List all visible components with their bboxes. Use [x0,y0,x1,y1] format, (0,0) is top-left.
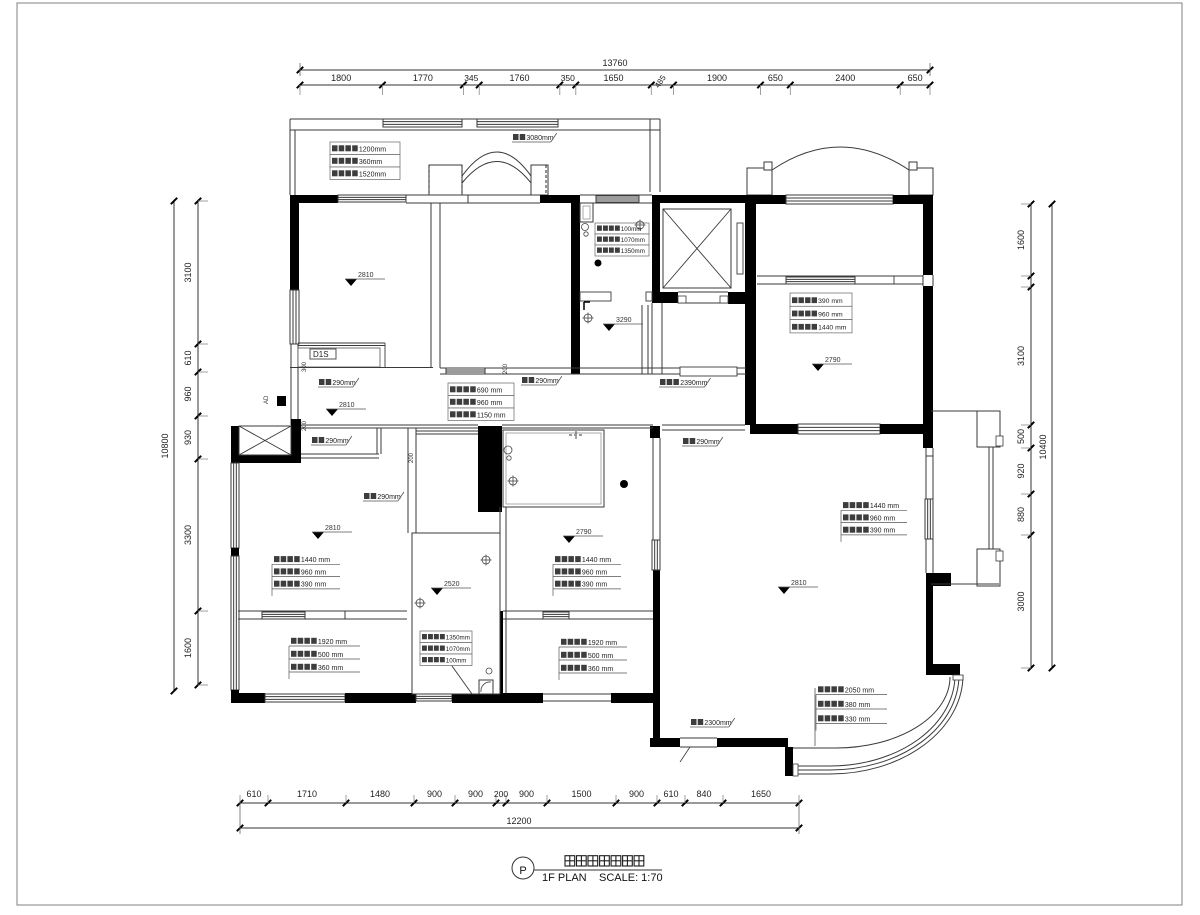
svg-text:900: 900 [468,789,483,799]
svg-text:12200: 12200 [506,816,531,826]
svg-text:900: 900 [427,789,442,799]
svg-text:930: 930 [183,430,193,445]
svg-text:960 mm: 960 mm [582,569,607,576]
svg-text:3300: 3300 [183,525,193,545]
svg-text:2390mm: 2390mm [680,380,707,387]
svg-text:500 mm: 500 mm [318,652,343,659]
svg-text:650: 650 [768,73,783,83]
svg-text:2400: 2400 [835,73,855,83]
svg-text:650: 650 [908,73,923,83]
svg-text:2810: 2810 [325,525,341,532]
svg-text:350: 350 [561,73,575,83]
svg-text:960 mm: 960 mm [301,569,326,576]
svg-text:300: 300 [302,361,308,372]
svg-text:1440 mm: 1440 mm [818,325,847,332]
svg-text:1600: 1600 [183,638,193,658]
svg-text:3000: 3000 [1016,591,1026,611]
svg-text:840: 840 [696,789,711,799]
svg-text:1440 mm: 1440 mm [582,557,611,564]
svg-text:1760: 1760 [509,73,529,83]
svg-text:610: 610 [183,350,193,365]
svg-text:290mm: 290mm [377,494,401,501]
svg-text:2790: 2790 [576,529,592,536]
svg-text:2050 mm: 2050 mm [845,687,874,694]
svg-text:2810: 2810 [358,272,374,279]
svg-text:690 mm: 690 mm [477,387,502,394]
svg-text:1920 mm: 1920 mm [588,640,617,647]
svg-text:880: 880 [1016,507,1026,522]
svg-text:1800: 1800 [331,73,351,83]
svg-text:200: 200 [302,420,308,431]
svg-text:200: 200 [503,363,509,374]
svg-text:610: 610 [246,789,261,799]
svg-text:390 mm: 390 mm [870,528,895,535]
svg-text:10400: 10400 [1038,434,1048,459]
svg-text:900: 900 [519,789,534,799]
svg-text:290mm: 290mm [696,439,720,446]
svg-text:360 mm: 360 mm [318,665,343,672]
svg-text:500 mm: 500 mm [588,653,613,660]
svg-text:1480: 1480 [370,789,390,799]
svg-text:2790: 2790 [825,357,841,364]
svg-text:1440 mm: 1440 mm [870,503,899,510]
svg-text:390 mm: 390 mm [818,298,843,305]
svg-text:610: 610 [663,789,678,799]
svg-text:1900: 1900 [707,73,727,83]
svg-text:1920 mm: 1920 mm [318,639,347,646]
svg-text:3100: 3100 [183,262,193,282]
svg-text:900: 900 [629,789,644,799]
svg-text:2810: 2810 [791,580,807,587]
svg-text:1500: 1500 [571,789,591,799]
svg-text:290mm: 290mm [535,378,559,385]
svg-text:P: P [519,865,526,877]
svg-text:1200mm: 1200mm [359,146,386,153]
svg-text:1F PLAN: 1F PLAN [542,872,587,884]
svg-text:1520mm: 1520mm [359,171,386,178]
svg-text:100mm: 100mm [621,226,642,233]
svg-text:360 mm: 360 mm [588,666,613,673]
svg-text:1770: 1770 [413,73,433,83]
svg-text:3080mm: 3080mm [526,135,553,142]
svg-text:1070mm: 1070mm [446,646,470,653]
svg-text:290mm: 290mm [332,380,356,387]
svg-text:200: 200 [494,789,508,799]
svg-text:290mm: 290mm [325,438,349,445]
svg-text:D1S: D1S [313,350,329,359]
svg-text:380 mm: 380 mm [845,702,870,709]
svg-text:2300mm: 2300mm [704,720,731,727]
svg-text:390 mm: 390 mm [582,582,607,589]
svg-text:960: 960 [183,386,193,401]
svg-text:100mm: 100mm [446,657,467,664]
svg-text:AD: AD [264,395,270,404]
svg-text:345: 345 [464,73,478,83]
svg-text:1650: 1650 [604,73,624,83]
svg-text:360mm: 360mm [359,159,383,166]
svg-text:3290: 3290 [616,317,632,324]
svg-text:960 mm: 960 mm [818,311,843,318]
svg-text:10800: 10800 [160,433,170,458]
svg-text:3100: 3100 [1016,346,1026,366]
svg-text:1600: 1600 [1016,230,1026,250]
svg-text:2520: 2520 [444,581,460,588]
svg-text:1650: 1650 [751,789,771,799]
svg-text:SCALE: 1:70: SCALE: 1:70 [599,872,663,884]
svg-text:500: 500 [1016,429,1026,444]
svg-text:1350mm: 1350mm [446,634,470,641]
svg-text:960 mm: 960 mm [477,400,502,407]
svg-text:1150 mm: 1150 mm [477,412,506,419]
svg-text:1440 mm: 1440 mm [301,557,330,564]
svg-text:1710: 1710 [297,789,317,799]
svg-text:920: 920 [1016,463,1026,478]
svg-text:330 mm: 330 mm [845,716,870,723]
svg-text:1070mm: 1070mm [621,237,645,244]
svg-text:200: 200 [409,452,415,463]
svg-text:2810: 2810 [339,402,355,409]
svg-text:390 mm: 390 mm [301,582,326,589]
svg-text:13760: 13760 [602,58,627,68]
svg-text:1350mm: 1350mm [621,248,645,255]
svg-text:960 mm: 960 mm [870,515,895,522]
